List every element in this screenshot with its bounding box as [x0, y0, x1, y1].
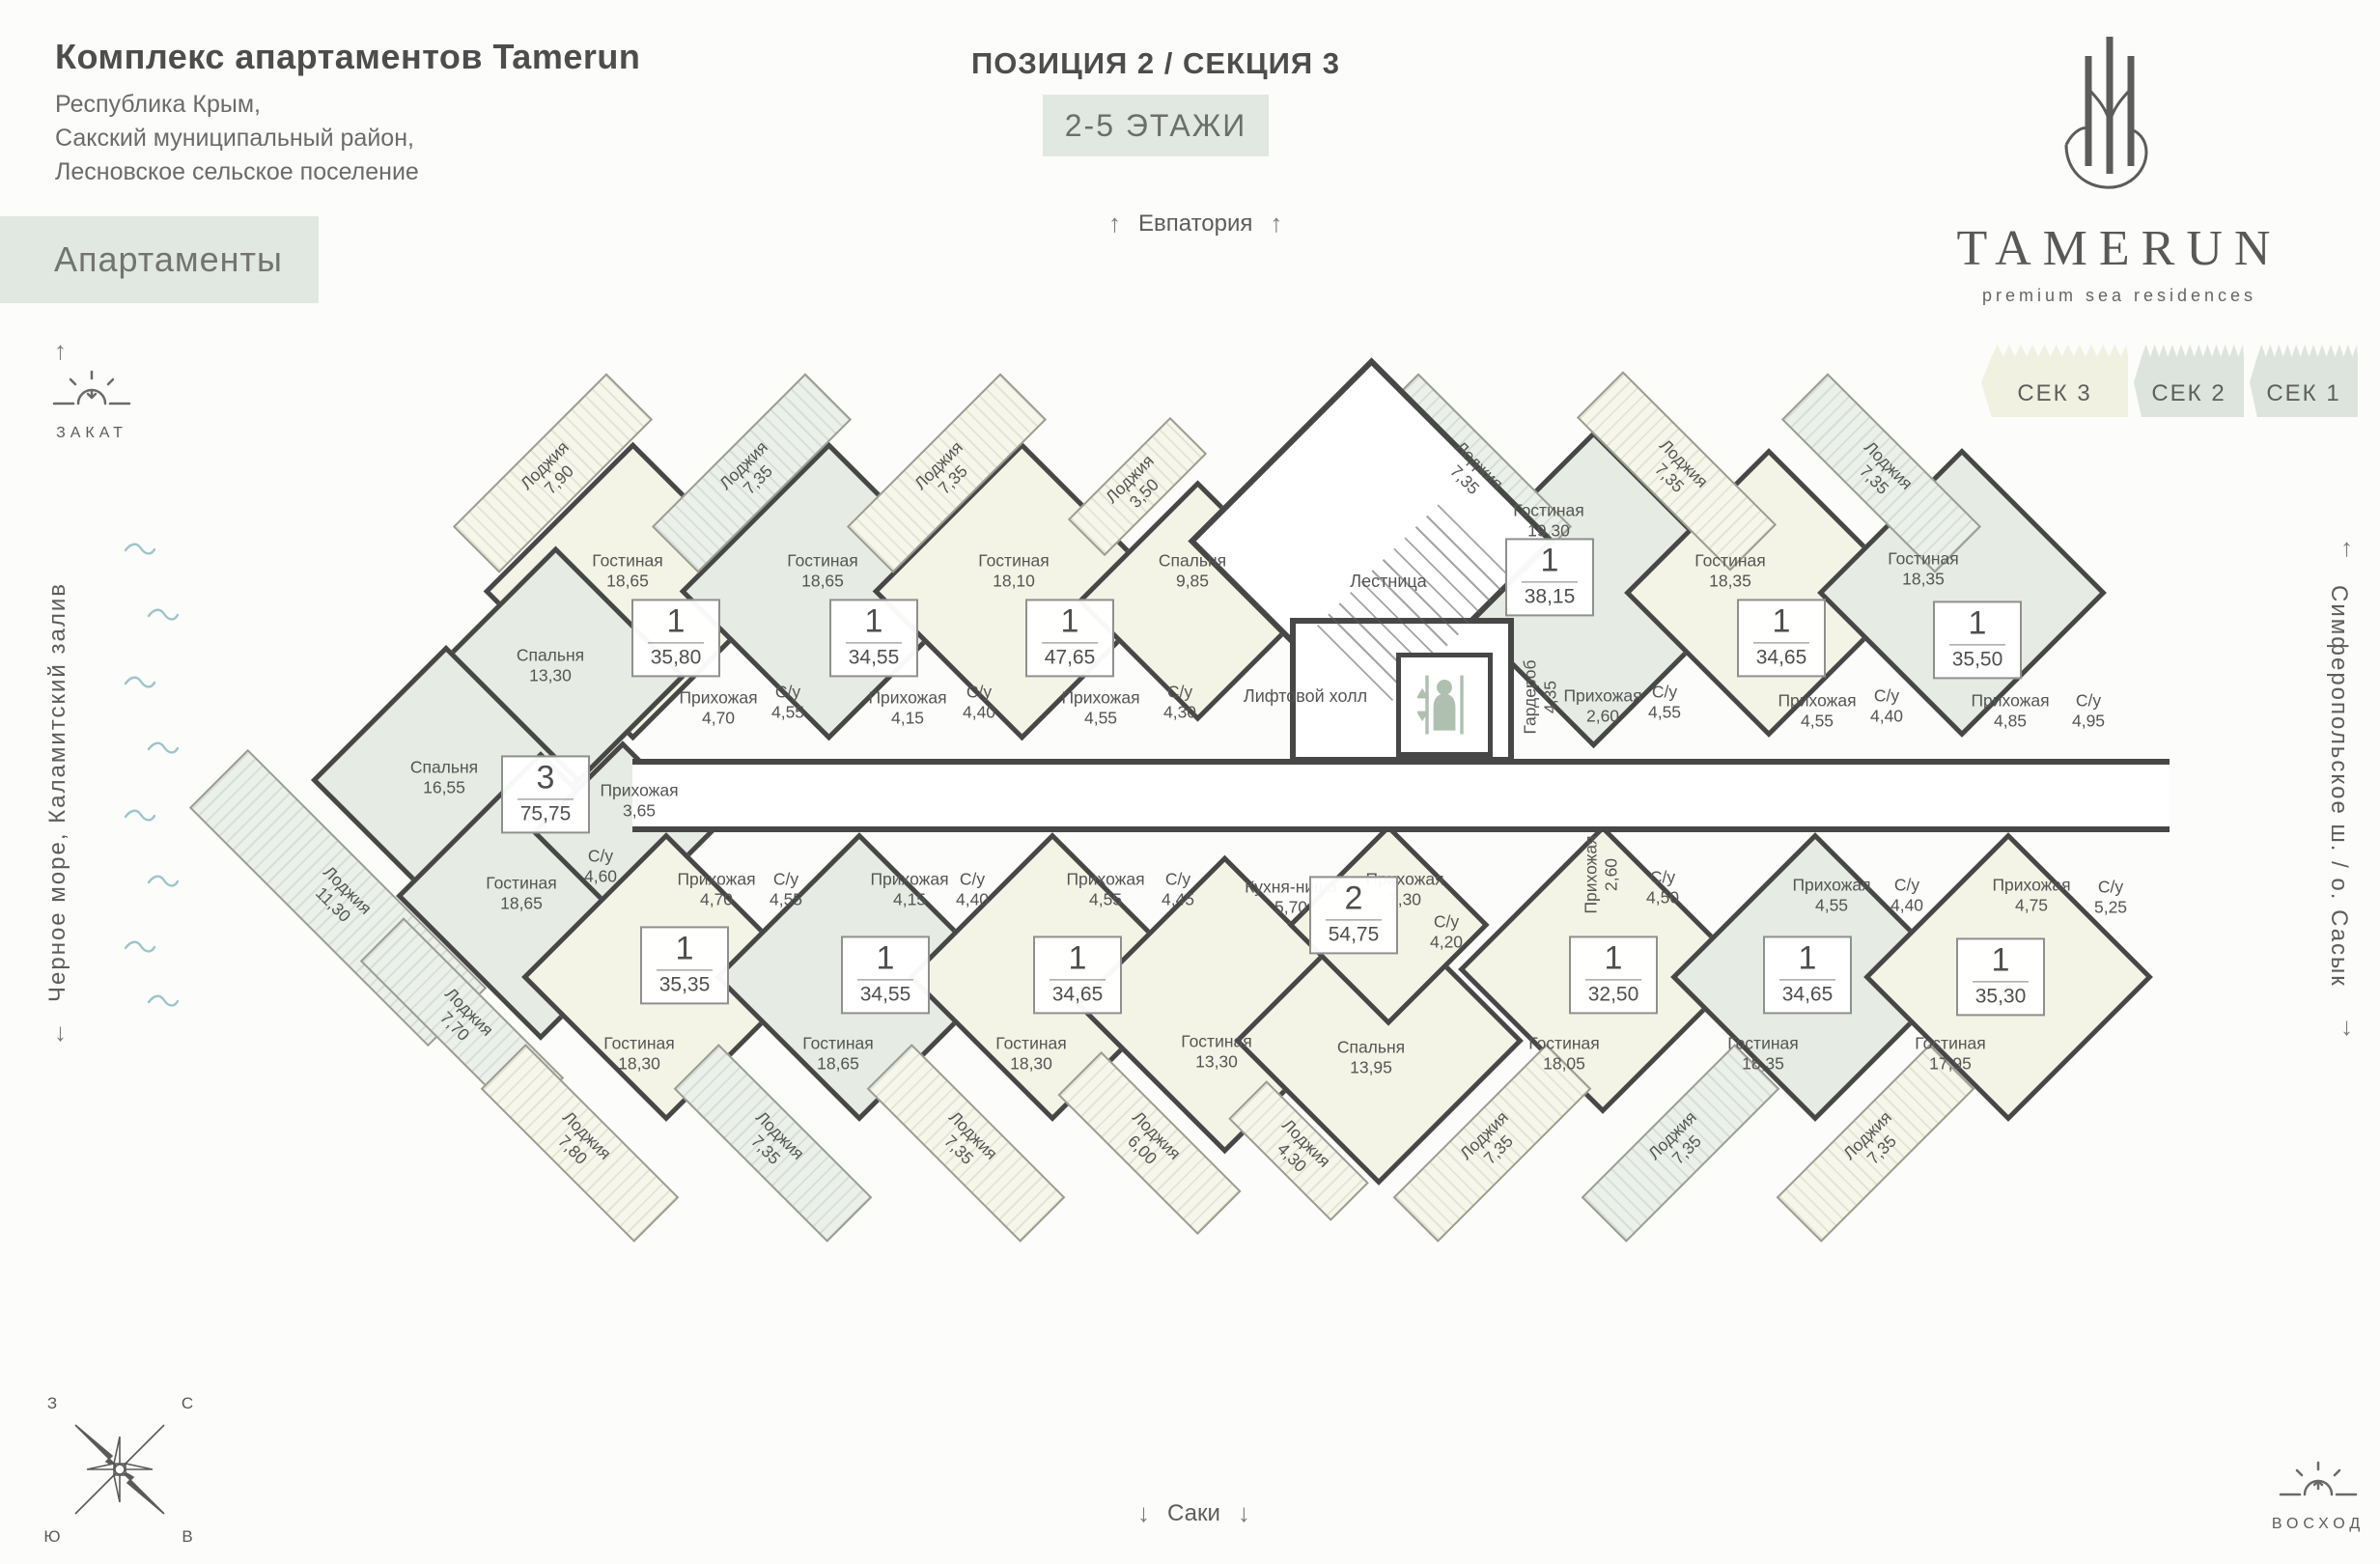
apartment-total-area: 35,30 [1958, 986, 2043, 1009]
apartment-rooms-count: 1 [642, 932, 727, 966]
room-label: Прихожая4,15 [868, 688, 946, 730]
room-label: Спальня9,85 [1159, 551, 1226, 593]
room-label: С/у4,30 [1163, 683, 1196, 724]
room-label: Прихожая4,55 [1066, 870, 1144, 911]
room-label: Гостиная18,65 [787, 551, 857, 593]
elevator [1396, 653, 1493, 757]
room-label: Прихожая4,85 [1971, 691, 2049, 733]
room-label: С/у4,40 [956, 870, 989, 911]
room-label: Прихожая4,15 [870, 870, 948, 911]
room-label: Прихожая2,60 [1582, 835, 1623, 913]
badge-divider [1753, 642, 1809, 644]
apartment-badge-b5[interactable]: 2 54,75 [1309, 876, 1398, 954]
room-label: Гостиная17,95 [1915, 1034, 1985, 1075]
room-label: Спальня13,30 [517, 646, 584, 687]
apartment-badge-t5[interactable]: 1 34,65 [1737, 599, 1826, 677]
badge-divider [1585, 979, 1641, 981]
apartment-rooms-count: 1 [1027, 604, 1112, 639]
room-label: Гостиная18,05 [1528, 1034, 1599, 1075]
room-label: Гостиная18,65 [486, 874, 556, 915]
apartment-total-area: 32,50 [1571, 984, 1656, 1007]
room-label: Гостиная18,35 [1727, 1034, 1798, 1075]
room-label: Прихожая4,55 [1778, 691, 1856, 733]
apartment-badge-b1[interactable]: 3 75,75 [501, 755, 590, 833]
apartment-badge-t2[interactable]: 1 34,55 [829, 599, 918, 677]
room-label: Прихожая4,70 [677, 870, 755, 911]
room-label: С/у4,55 [771, 683, 804, 724]
room-label: С/у4,95 [2072, 691, 2105, 733]
apartment-badge-b7[interactable]: 1 34,65 [1763, 936, 1852, 1014]
stairs-label: Лестница [1350, 572, 1426, 593]
room-label: Гостиная18,10 [978, 551, 1049, 593]
apartment-total-area: 75,75 [503, 803, 588, 826]
badge-divider [657, 969, 713, 971]
room-label: Спальня13,95 [1337, 1038, 1405, 1079]
room-label: Прихожая4,75 [1992, 876, 2070, 917]
room-label: С/у4,55 [770, 870, 802, 911]
apartment-rooms-count: 1 [1507, 544, 1592, 578]
room-label: Гардероб4,35 [1521, 660, 1562, 735]
room-label: Спальня16,55 [410, 758, 478, 799]
badge-divider [1042, 642, 1098, 644]
apartment-rooms-count: 3 [503, 761, 588, 796]
room-label: Прихожая3,65 [600, 781, 678, 823]
apartment-total-area: 35,80 [633, 647, 718, 670]
apartment-badge-t4[interactable]: 1 38,15 [1505, 538, 1594, 616]
apartment-rooms-count: 1 [1571, 941, 1656, 976]
apartment-badge-b3[interactable]: 1 34,55 [841, 936, 930, 1014]
room-label: Гостиная19,30 [1513, 501, 1583, 543]
badge-divider [1326, 919, 1382, 921]
badge-divider [1522, 581, 1578, 583]
apartment-rooms-count: 1 [633, 604, 718, 639]
room-label: Прихожая4,55 [1061, 688, 1139, 730]
apartment-badge-b2[interactable]: 1 35,35 [640, 926, 729, 1004]
apartment-rooms-count: 1 [1765, 941, 1850, 976]
apartment-badge-b4[interactable]: 1 34,65 [1033, 936, 1122, 1014]
apartment-total-area: 35,50 [1935, 649, 2020, 672]
room-label: Прихожая4,55 [1792, 876, 1870, 917]
apartment-rooms-count: 1 [1958, 943, 2043, 978]
room-label: С/у4,40 [1870, 686, 1903, 728]
apartment-rooms-count: 1 [1035, 941, 1120, 976]
badge-divider [846, 642, 902, 644]
corridor [632, 759, 2170, 832]
room-label: С/у4,40 [963, 683, 995, 724]
apartment-total-area: 38,15 [1507, 586, 1592, 609]
room-label: С/у5,25 [2094, 878, 2127, 919]
apartment-total-area: 34,65 [1765, 984, 1850, 1007]
apartment-badge-b6[interactable]: 1 32,50 [1569, 936, 1658, 1014]
room-label: С/у4,50 [1646, 868, 1679, 909]
badge-divider [857, 979, 913, 981]
apartment-badge-t3[interactable]: 1 47,65 [1025, 599, 1114, 677]
badge-divider [1949, 644, 2005, 646]
room-label: С/у4,45 [1162, 870, 1194, 911]
apartment-total-area: 34,65 [1035, 984, 1120, 1007]
room-label: Гостиная18,65 [802, 1034, 873, 1075]
elevator-hall-label: Лифтовой холл [1244, 686, 1367, 708]
room-label: Гостиная18,65 [592, 551, 662, 593]
room-label: Прихожая4,70 [679, 688, 757, 730]
badge-divider [648, 642, 704, 644]
badge-divider [1779, 979, 1835, 981]
apartment-badge-t1[interactable]: 1 35,80 [631, 599, 720, 677]
room-label: Гостиная13,30 [1181, 1032, 1251, 1074]
floor-plan: Лестница Лифтовой холл Лоджия7,90Гостина… [0, 0, 2380, 1564]
apartment-badge-t6[interactable]: 1 35,50 [1933, 600, 2022, 679]
room-label: С/у4,60 [584, 847, 617, 888]
room-label: Прихожая2,60 [1563, 686, 1641, 728]
apartment-total-area: 47,65 [1027, 647, 1112, 670]
badge-divider [1973, 981, 2029, 983]
apartment-rooms-count: 1 [843, 941, 928, 976]
room-label: С/у4,20 [1430, 912, 1463, 954]
room-label: Гостиная18,30 [603, 1034, 674, 1075]
room-label: Гостиная18,30 [995, 1034, 1066, 1075]
apartment-total-area: 34,55 [843, 984, 928, 1007]
room-label: Гостиная18,35 [1888, 549, 1958, 591]
room-label: Гостиная18,35 [1694, 551, 1765, 593]
apartment-total-area: 34,65 [1739, 647, 1824, 670]
elevator-person-icon [1417, 670, 1471, 740]
apartment-total-area: 34,55 [831, 647, 916, 670]
badge-divider [1050, 979, 1106, 981]
room-label: С/у4,40 [1890, 876, 1923, 917]
apartment-rooms-count: 1 [1739, 604, 1824, 639]
apartment-badge-b8[interactable]: 1 35,30 [1956, 937, 2045, 1016]
apartment-rooms-count: 2 [1311, 881, 1396, 916]
apartment-total-area: 54,75 [1311, 924, 1396, 947]
badge-divider [518, 798, 574, 800]
apartment-total-area: 35,35 [642, 974, 727, 997]
apartment-rooms-count: 1 [831, 604, 916, 639]
apartment-rooms-count: 1 [1935, 606, 2020, 641]
room-label: С/у4,55 [1648, 683, 1681, 724]
